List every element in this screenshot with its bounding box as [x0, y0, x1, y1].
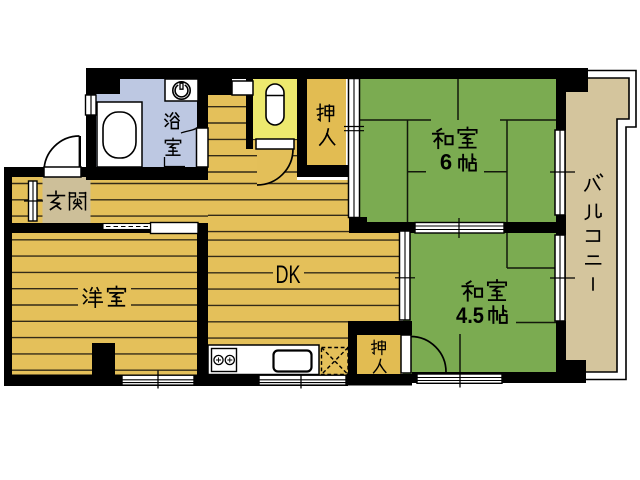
svg-text:4.5: 4.5 [456, 303, 484, 328]
svg-text:DK: DK [276, 261, 301, 289]
svg-text:6: 6 [440, 150, 452, 175]
